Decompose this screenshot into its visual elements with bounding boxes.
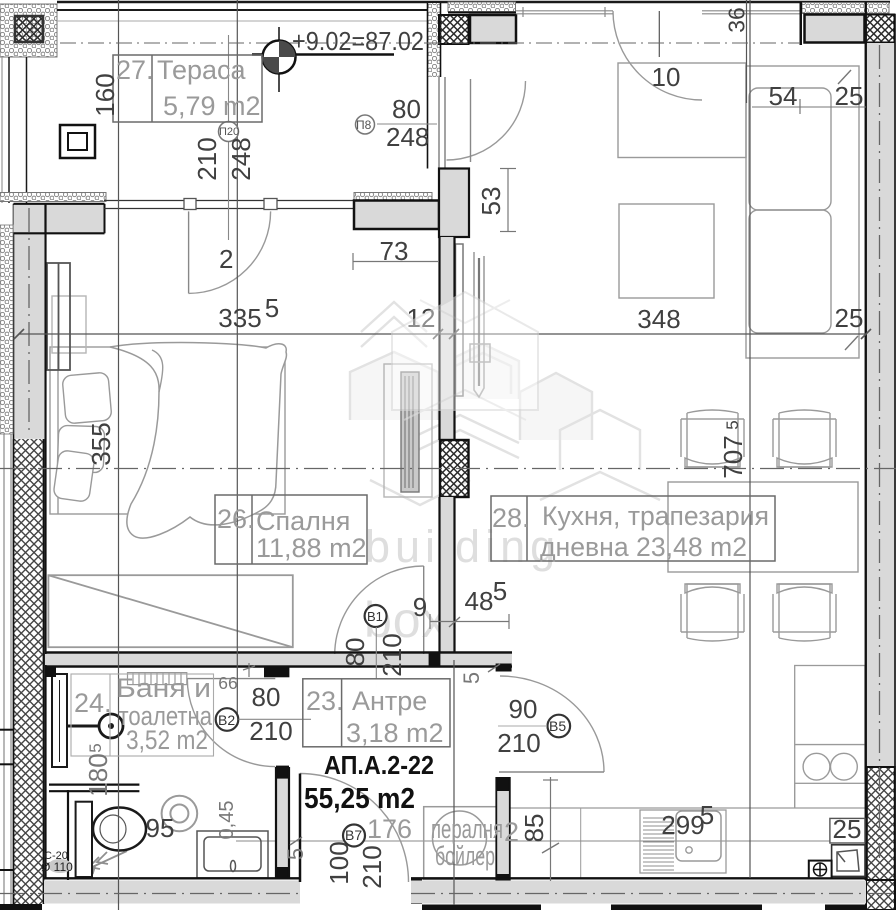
svg-text:25: 25 [835,303,864,333]
svg-text:B7: B7 [345,827,362,843]
svg-text:B5: B5 [549,718,566,734]
svg-text:Баня и: Баня и [116,673,211,703]
svg-text:210: 210 [192,137,222,180]
svg-text:5: 5 [283,848,308,860]
svg-text:Кухня, трапезария: Кухня, трапезария [542,501,769,531]
svg-text:23.: 23. [306,686,344,716]
svg-text:Спалня: Спалня [256,506,350,536]
svg-text:Тераса: Тераса [157,55,247,85]
svg-text:0,45: 0,45 [216,801,238,840]
svg-text:54: 54 [769,81,798,111]
svg-text:160: 160 [90,73,120,116]
svg-text:26.: 26. [217,504,255,534]
svg-text:55,25 m2: 55,25 m2 [304,783,415,815]
svg-text:5: 5 [265,293,279,323]
svg-text:210: 210 [357,845,387,888]
svg-text:299: 299 [661,810,704,840]
svg-text:100: 100 [324,841,354,884]
svg-text:3,52 m2: 3,52 m2 [126,725,208,755]
svg-text:53: 53 [476,187,506,216]
svg-text:180: 180 [83,753,113,796]
svg-text:5: 5 [86,743,105,752]
svg-text:building: building [365,521,560,572]
svg-text:355: 355 [86,422,116,465]
svg-text:9: 9 [413,592,427,622]
svg-text:5: 5 [493,576,507,606]
svg-text:36: 36 [724,7,750,33]
svg-text:5: 5 [459,672,484,684]
svg-text:Ø 110: Ø 110 [41,860,73,874]
svg-text:80: 80 [392,94,421,124]
svg-text:5,79 m2: 5,79 m2 [163,91,261,121]
svg-text:пералня: пералня [431,814,503,844]
svg-text:90: 90 [509,694,538,724]
svg-text:27.: 27. [116,55,154,85]
svg-text:95: 95 [146,813,175,843]
svg-text:24.: 24. [74,688,112,718]
svg-text:48: 48 [465,586,494,616]
svg-text:80: 80 [340,638,370,667]
svg-text:210: 210 [377,633,407,676]
svg-text:28.: 28. [492,503,530,533]
svg-text:248: 248 [226,137,256,180]
svg-text:335: 335 [218,303,261,333]
svg-text:B2: B2 [218,712,235,728]
svg-text:3,18 m2: 3,18 m2 [346,718,444,748]
svg-text:707: 707 [718,435,748,478]
svg-text:25: 25 [833,814,862,844]
svg-text:П20: П20 [219,126,239,138]
svg-text:348: 348 [637,304,680,334]
svg-text:73: 73 [380,236,409,266]
svg-text:248: 248 [386,122,429,152]
svg-text:66: 66 [218,673,237,693]
svg-text:5: 5 [723,420,742,429]
svg-text:210: 210 [497,728,540,758]
svg-text:85: 85 [519,814,549,843]
svg-text:176: 176 [367,814,412,844]
svg-text:10: 10 [652,62,681,92]
svg-text:бойлер: бойлер [435,841,495,871]
svg-text:25: 25 [835,81,864,111]
svg-text:B1: B1 [367,609,383,624]
svg-text:210: 210 [249,716,292,746]
svg-text:+9.02=87.02: +9.02=87.02 [292,26,424,56]
svg-text:Антре: Антре [352,686,427,716]
svg-text:80: 80 [252,682,281,712]
svg-text:2: 2 [219,244,233,274]
svg-text:2: 2 [504,817,519,847]
svg-text:АП.А.2-22: АП.А.2-22 [324,750,434,780]
svg-text:дневна 23,48 m2: дневна 23,48 m2 [540,532,747,562]
svg-text:5: 5 [700,800,714,830]
svg-text:11,88 m2: 11,88 m2 [256,533,367,563]
svg-text:П8: П8 [356,118,372,132]
